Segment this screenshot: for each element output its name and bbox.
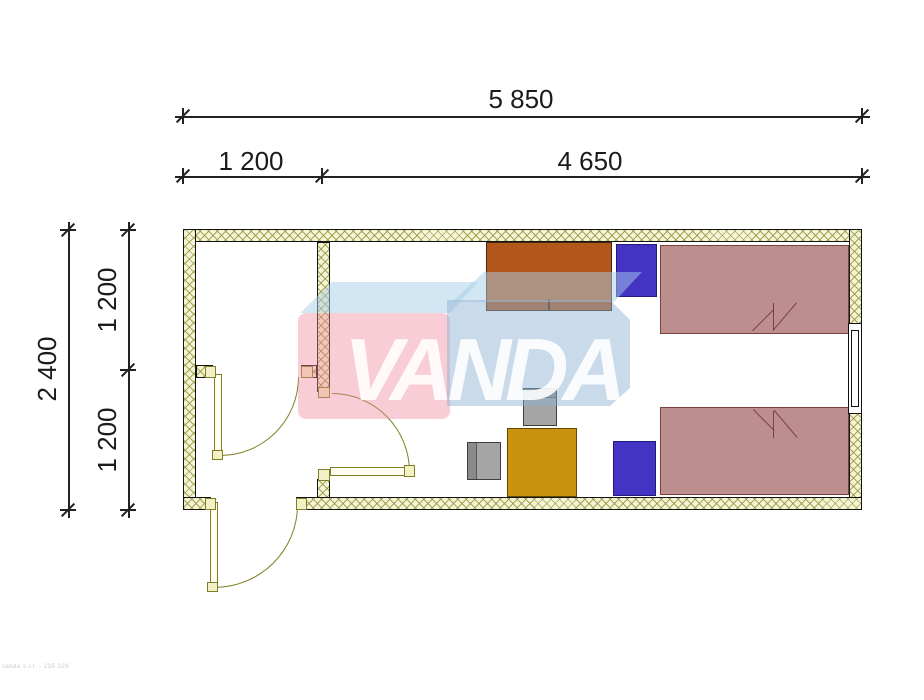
door-jamb	[205, 366, 216, 378]
bed-top	[660, 245, 849, 334]
dim-label-total-width: 5 850	[441, 86, 601, 112]
wall-bottom-right	[296, 497, 862, 510]
chair-top	[523, 388, 557, 426]
dim-line-total-depth	[68, 222, 70, 518]
wall-left	[183, 229, 196, 510]
wall-right-lower	[849, 412, 862, 510]
bed-top-blanket-fold	[773, 303, 774, 331]
dim-label-lower-depth: 1 200	[94, 360, 120, 520]
dim-line-width-segments	[175, 176, 870, 178]
door-jamb	[296, 498, 307, 510]
door-jamb	[318, 469, 330, 481]
door-leaf-vestibule	[214, 374, 222, 456]
wardrobe-door-tick	[548, 299, 550, 310]
door-swing-vestibule	[220, 377, 299, 456]
wall-right-upper	[849, 229, 862, 325]
chair-backrest	[524, 389, 556, 398]
chair-left	[467, 442, 501, 480]
window-sash	[851, 330, 859, 407]
door-leaf-room	[330, 467, 412, 476]
dim-label-room-width: 4 650	[510, 148, 670, 174]
door-leaf-entrance	[210, 502, 218, 588]
nightstand-bottom	[613, 441, 656, 496]
door-leaf-cap	[212, 450, 223, 460]
door-leaf-cap	[404, 465, 415, 477]
bed-bottom-blanket-fold	[773, 411, 774, 438]
door-swing-entrance	[214, 505, 298, 588]
door-jamb	[301, 366, 313, 378]
wall-top	[183, 229, 862, 242]
desk	[507, 428, 577, 497]
door-jamb	[205, 498, 216, 510]
wall-interior-upper	[317, 242, 330, 392]
dim-label-total-depth: 2 400	[34, 289, 60, 449]
door-jamb	[318, 387, 330, 398]
wall-interior-lower	[317, 479, 330, 498]
dim-label-upper-depth: 1 200	[94, 220, 120, 380]
nightstand-top	[616, 244, 657, 297]
door-swing-room	[332, 393, 410, 472]
footer-credit-text: vanda s.r.l. - 235 328	[2, 664, 69, 670]
dim-label-entry-width: 1 200	[171, 148, 331, 174]
bed-bottom	[660, 407, 849, 495]
floor-plan: 5 850 1 200 4 650 2 400 1 200 1 200	[0, 0, 924, 700]
chair-backrest	[468, 443, 477, 479]
door-leaf-cap	[207, 582, 218, 592]
dim-line-total-width	[175, 116, 870, 118]
